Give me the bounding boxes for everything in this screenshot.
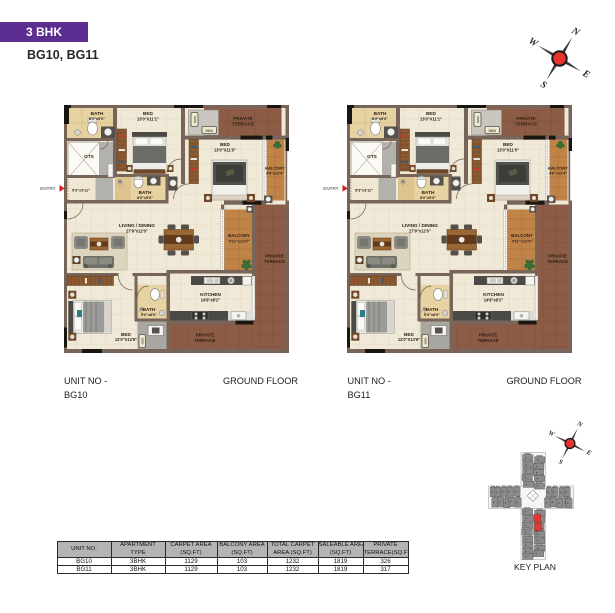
svg-text:OTS: OTS <box>367 154 377 159</box>
svg-text:BATH: BATH <box>422 190 435 195</box>
svg-text:5'3"x3'11": 5'3"x3'11" <box>72 189 90 193</box>
svg-text:BED: BED <box>503 142 514 147</box>
svg-text:E: E <box>584 448 593 457</box>
svg-text:BATH: BATH <box>142 307 155 312</box>
svg-text:N: N <box>569 25 582 39</box>
svg-text:PRIVATE: PRIVATE <box>265 254 283 259</box>
svg-text:PRIVATE: PRIVATE <box>195 333 213 338</box>
svg-text:S: S <box>538 79 549 92</box>
svg-text:ODU: ODU <box>193 116 197 123</box>
svg-text:13'0"X11'1": 13'0"X11'1" <box>137 117 159 122</box>
svg-text:ENTRY: ENTRY <box>323 186 339 191</box>
svg-text:S: S <box>557 458 564 466</box>
svg-text:E: E <box>580 68 593 82</box>
svg-text:KITCHEN: KITCHEN <box>200 292 221 297</box>
svg-text:TERRACE: TERRACE <box>194 338 215 343</box>
svg-text:BED: BED <box>220 142 231 147</box>
svg-text:27'9"x12'0": 27'9"x12'0" <box>409 229 431 234</box>
svg-text:TERRACE: TERRACE <box>263 259 284 264</box>
svg-text:14'8"x8'2": 14'8"x8'2" <box>200 298 220 303</box>
svg-text:8'2"x5'0": 8'2"x5'0" <box>372 117 388 121</box>
svg-text:TERRACE: TERRACE <box>515 122 538 127</box>
svg-text:ENTRY: ENTRY <box>40 186 56 191</box>
svg-text:W: W <box>547 429 556 438</box>
svg-text:13'0"X11'1": 13'0"X11'1" <box>420 117 442 122</box>
svg-text:14'8"x8'2": 14'8"x8'2" <box>484 298 504 303</box>
svg-text:BED: BED <box>143 111 154 116</box>
svg-text:W: W <box>526 36 540 51</box>
svg-text:KITCHEN: KITCHEN <box>483 292 504 297</box>
svg-text:13'0"X11'0": 13'0"X11'0" <box>497 148 519 153</box>
svg-text:PRIVATE: PRIVATE <box>233 116 253 121</box>
svg-text:4'11"x12'0": 4'11"x12'0" <box>228 239 249 244</box>
svg-text:BALCONY: BALCONY <box>511 233 533 238</box>
svg-text:BALCONY: BALCONY <box>228 233 250 238</box>
svg-text:PRIVATE: PRIVATE <box>548 254 566 259</box>
svg-text:LIVING / DINING: LIVING / DINING <box>119 223 155 228</box>
svg-text:ODU: ODU <box>140 338 144 345</box>
svg-text:PRIVATE: PRIVATE <box>516 116 536 121</box>
svg-text:8'0"x5'0": 8'0"x5'0" <box>420 196 436 200</box>
svg-text:5'0"x8'6": 5'0"x8'6" <box>141 313 157 317</box>
svg-text:27'9"x12'0": 27'9"x12'0" <box>126 229 148 234</box>
svg-text:BALCONY: BALCONY <box>265 166 285 171</box>
svg-text:12'0"X13'6": 12'0"X13'6" <box>398 337 420 342</box>
svg-text:8'2"x5'0": 8'2"x5'0" <box>89 117 105 121</box>
svg-text:LIVING / DINING: LIVING / DINING <box>402 223 438 228</box>
svg-text:5'0"x8'6": 5'0"x8'6" <box>424 313 440 317</box>
svg-text:13'0"X11'0": 13'0"X11'0" <box>214 148 236 153</box>
svg-text:BED: BED <box>426 111 437 116</box>
svg-text:8'0"x5'0": 8'0"x5'0" <box>137 196 153 200</box>
svg-text:TERRACE: TERRACE <box>477 338 498 343</box>
svg-text:12'0"X13'6": 12'0"X13'6" <box>114 337 136 342</box>
svg-text:BATH: BATH <box>90 111 103 116</box>
svg-text:4'11"x12'0": 4'11"x12'0" <box>511 239 532 244</box>
svg-text:TERRACE: TERRACE <box>231 122 254 127</box>
svg-text:5'3"x3'11": 5'3"x3'11" <box>355 189 373 193</box>
svg-text:TERRACE: TERRACE <box>547 259 568 264</box>
svg-text:4'0"x12'4": 4'0"x12'4" <box>549 172 567 176</box>
svg-text:OTS: OTS <box>84 154 94 159</box>
svg-text:ODU: ODU <box>488 129 496 133</box>
svg-text:BATH: BATH <box>426 307 439 312</box>
svg-text:N: N <box>575 420 584 429</box>
svg-text:BATH: BATH <box>138 190 151 195</box>
svg-text:ODU: ODU <box>476 116 480 123</box>
svg-text:ODU: ODU <box>424 338 428 345</box>
svg-text:BALCONY: BALCONY <box>548 166 568 171</box>
svg-text:PRIVATE: PRIVATE <box>479 333 497 338</box>
svg-text:BATH: BATH <box>374 111 387 116</box>
svg-text:ODU: ODU <box>205 129 213 133</box>
svg-text:4'0"x12'4": 4'0"x12'4" <box>265 172 283 176</box>
